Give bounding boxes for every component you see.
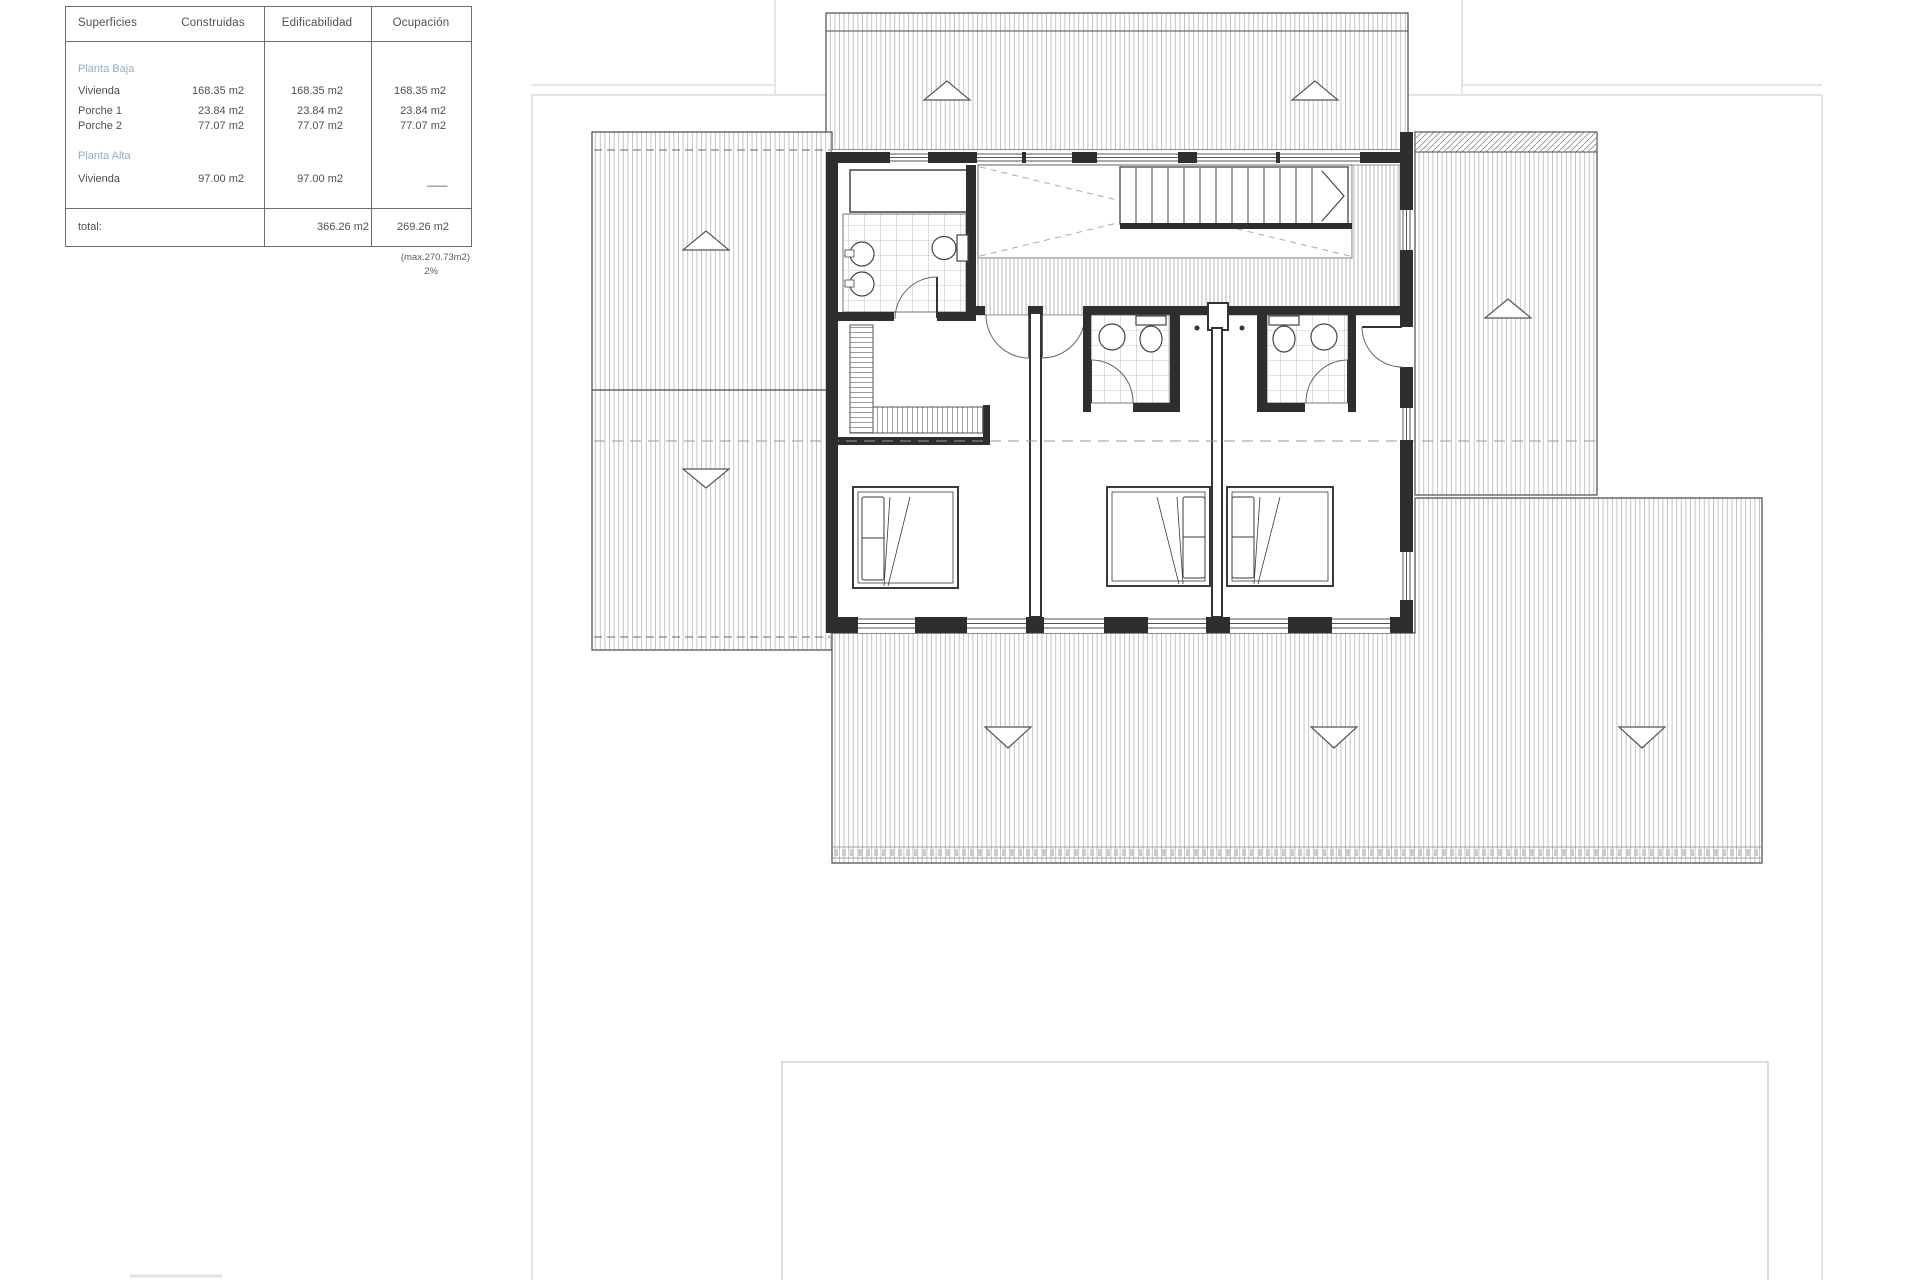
col-header-superficies: Superficies: [78, 16, 137, 30]
total-edificabilidad: 366.26 m2: [317, 220, 369, 234]
cell-construidas: 23.84 m2: [198, 104, 244, 118]
toilet-icon: [1273, 326, 1295, 352]
total-label: total:: [78, 220, 102, 234]
sink-icon: [1311, 324, 1337, 350]
col-header-ocupacion: Ocupación: [393, 16, 450, 30]
surfaces-table: Superficies Construidas Edificabilidad O…: [65, 6, 472, 247]
cell-ocupacion: 168.35 m2: [394, 84, 446, 98]
door-hinge-dot: [1240, 326, 1245, 331]
table-divider: [66, 208, 471, 209]
bed-2: [1107, 487, 1210, 586]
cell-ocupacion: 77.07 m2: [400, 119, 446, 133]
table-divider: [371, 7, 372, 246]
footnote-max: (max.270.73m2): [65, 252, 470, 263]
bed-1: [853, 487, 958, 588]
table-divider: [66, 41, 471, 42]
door-hinge-dot: [1195, 326, 1200, 331]
floor-plan-sheet: Superficies Construidas Edificabilidad O…: [0, 0, 1920, 1280]
cell-construidas: 168.35 m2: [192, 84, 244, 98]
table-divider: [264, 7, 265, 246]
cell-construidas: 97.00 m2: [198, 172, 244, 186]
bed-3: [1227, 487, 1333, 586]
bathroom-3: [1257, 306, 1356, 412]
cell-edificabilidad: 168.35 m2: [291, 84, 343, 98]
cell-ocupacion: 23.84 m2: [400, 104, 446, 118]
cell-construidas: 77.07 m2: [198, 119, 244, 133]
sink-icon: [1099, 324, 1125, 350]
row-label: Porche 2: [78, 119, 122, 133]
toilet-icon: [1140, 326, 1162, 352]
cell-edificabilidad: 77.07 m2: [297, 119, 343, 133]
window-mullion: [1276, 152, 1280, 163]
bathroom-2: [1083, 306, 1180, 412]
row-label: Vivienda: [78, 172, 120, 186]
left-roof: [592, 132, 832, 650]
stairs: [1120, 167, 1352, 229]
section-label-planta-alta: Planta Alta: [78, 149, 131, 163]
closet: [850, 170, 972, 212]
row-label: Porche 1: [78, 104, 122, 118]
total-ocupacion: 269.26 m2: [397, 220, 449, 234]
cell-edificabilidad: 23.84 m2: [297, 104, 343, 118]
cell-ocupacion-dash: ——: [427, 179, 446, 193]
window-mullion: [1022, 152, 1026, 163]
pocket-door: [1208, 303, 1228, 330]
footnote-percent: 2%: [65, 266, 438, 277]
section-label-planta-baja: Planta Baja: [78, 62, 134, 76]
ground-floor-pool-outline: [782, 1062, 1768, 1280]
upper-roof: [826, 13, 1408, 150]
col-header-construidas: Construidas: [181, 16, 245, 30]
cell-edificabilidad: 97.00 m2: [297, 172, 343, 186]
toilet-icon: [932, 237, 956, 260]
col-header-edificabilidad: Edificabilidad: [282, 16, 353, 30]
row-label: Vivienda: [78, 84, 120, 98]
bathroom-1: [838, 165, 976, 321]
